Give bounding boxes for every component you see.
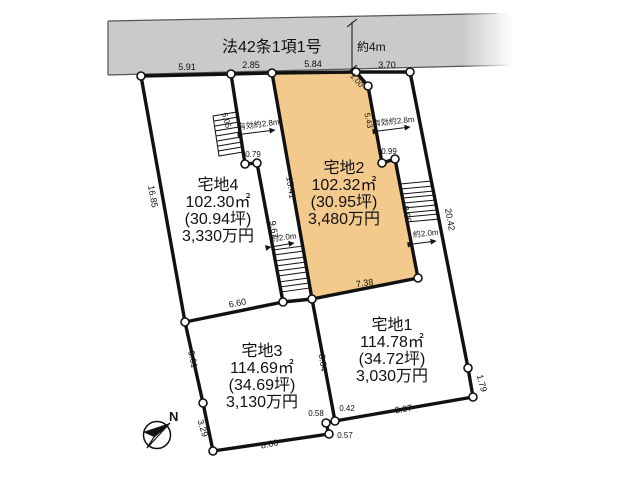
dim-jog-099: 0.99 — [381, 147, 397, 156]
dim-jog-058: 0.58 — [308, 409, 324, 418]
lot4-name: 宅地4 — [198, 176, 239, 194]
lot2-price: 3,480万円 — [308, 211, 380, 228]
dim-lot3-bottom: 8.06 — [260, 437, 279, 450]
lot2-tsubo: (30.95坪) — [311, 193, 378, 211]
lot1-label-block: 宅地1 114.78㎡ (34.72坪) 3,030万円 — [356, 316, 428, 385]
lot1-price: 3,030万円 — [356, 368, 428, 385]
lot4-label-block: 宅地4 102.30㎡ (30.94坪) 3,330万円 — [182, 176, 254, 245]
north-compass-icon: N — [143, 409, 178, 449]
dim-left-boundary: 16.85 — [146, 185, 160, 209]
dim-eff-width-left: 有効約2.8m — [237, 116, 280, 131]
dim-frontage-lot2: 5.84 — [304, 59, 322, 69]
lot1-area: 114.78㎡ — [360, 333, 424, 351]
lot3-name: 宅地3 — [242, 342, 283, 360]
dim-jog-079: 0.79 — [245, 150, 261, 159]
dim-pole-width-right: 約2.0m — [412, 227, 439, 240]
dim-right-boundary-lower: 1.79 — [475, 373, 489, 393]
lot4-tsubo: (30.94坪) — [185, 210, 252, 228]
road-width-label: 約4m — [357, 39, 386, 54]
dim-frontage-lot1-pole: 3.70 — [378, 60, 396, 70]
lot3-area: 114.69㎡ — [230, 359, 294, 377]
dim-lot13-border: 8.64 — [317, 353, 329, 372]
lot-layout-diagram: 法42条1項1号 約4m 5.91 2.85 5.84 3.70 1.00 16… — [0, 0, 640, 480]
road-law-label: 法42条1項1号 — [222, 38, 322, 56]
lot1-tsubo: (34.72坪) — [359, 350, 426, 368]
lot4-price: 3,330万円 — [182, 228, 254, 245]
lot4-area: 102.30㎡ — [186, 193, 251, 211]
dim-lot3-left-upper: 5.61 — [186, 350, 199, 369]
north-label: N — [169, 409, 178, 424]
lot3-tsubo: (34.69坪) — [229, 376, 296, 394]
lot2-area: 102.32㎡ — [312, 176, 377, 194]
dim-lot2-left: 15.41 — [284, 176, 297, 200]
dim-frontage-lot4: 5.91 — [178, 62, 196, 72]
dim-right-boundary: 20.42 — [443, 208, 457, 232]
lot3-price: 3,130万円 — [226, 394, 298, 411]
dim-frontage-lot3-pole: 2.85 — [242, 60, 260, 70]
dim-lot1-bottom: 8.97 — [394, 403, 413, 416]
diagram-svg: 法42条1項1号 約4m 5.91 2.85 5.84 3.70 1.00 16… — [0, 0, 640, 480]
lot1-name: 宅地1 — [372, 316, 413, 334]
dim-jog-042: 0.42 — [339, 404, 355, 413]
dim-lot4-bottom: 6.60 — [228, 296, 247, 309]
dim-eff-width-right: 有効約2.8m — [372, 114, 415, 128]
dim-jog-057: 0.57 — [337, 431, 353, 440]
lot2-name: 宅地2 — [324, 159, 365, 177]
lot3-label-block: 宅地3 114.69㎡ (34.69坪) 3,130万円 — [226, 342, 298, 411]
